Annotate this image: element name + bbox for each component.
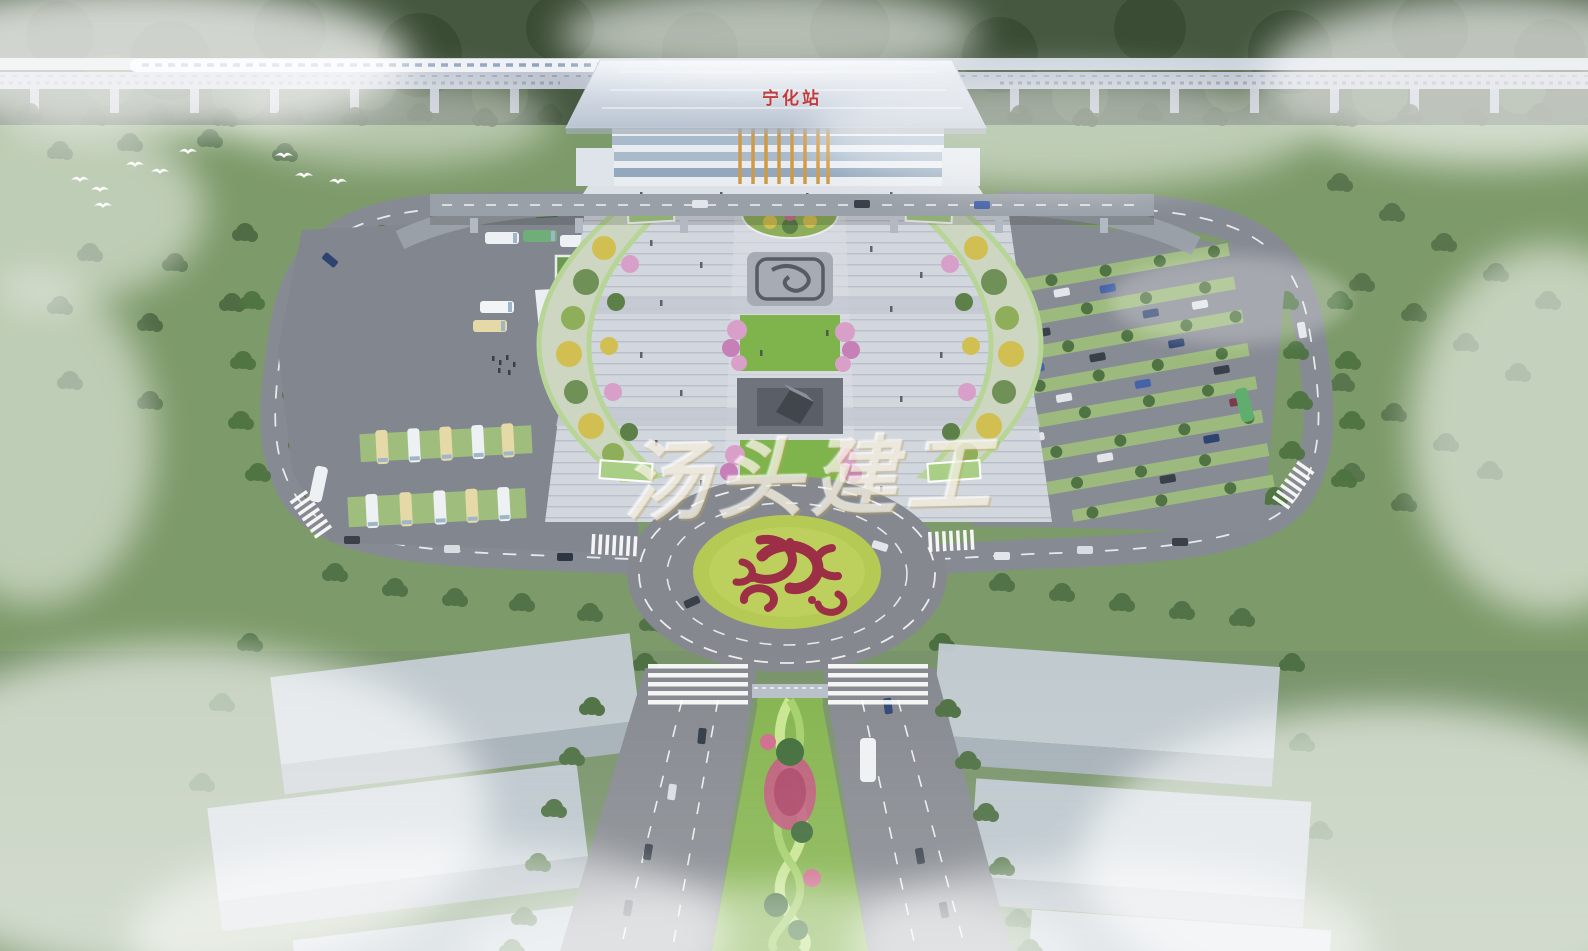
rendering-canvas: 宁化站 汤头建工 <box>0 0 1588 951</box>
sculpture <box>737 378 843 434</box>
emblem-paving <box>747 252 833 306</box>
plaza-lawn <box>722 315 860 372</box>
scene-art <box>0 0 1588 951</box>
